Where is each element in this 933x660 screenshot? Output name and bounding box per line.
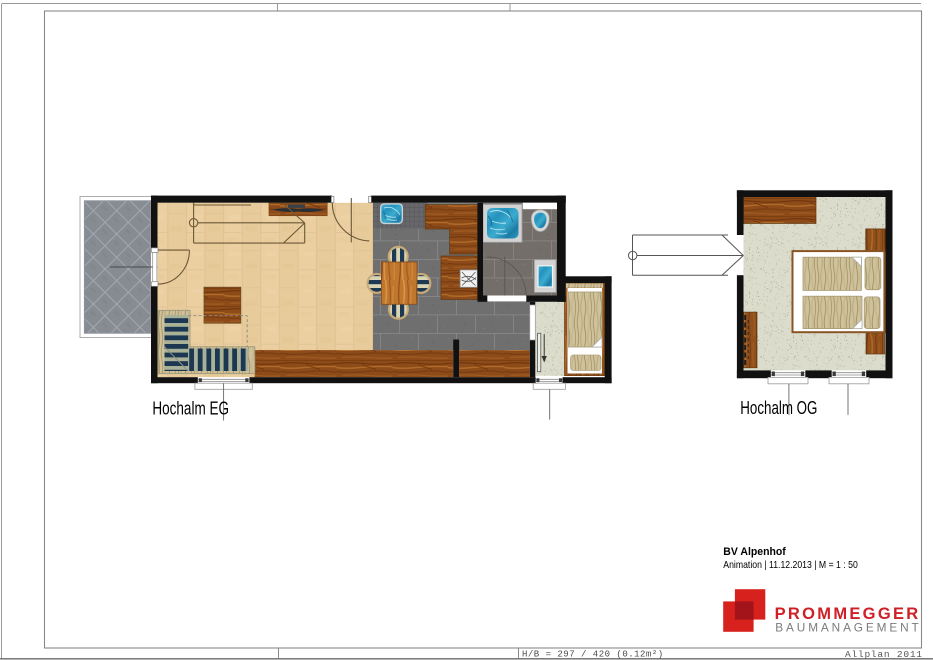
svg-text:Hochalm EG: Hochalm EG [152, 399, 229, 419]
svg-text:Allplan 2011: Allplan 2011 [845, 649, 922, 660]
svg-text:Animation | 11.12.2013 | M = 1: Animation | 11.12.2013 | M = 1 : 50 [723, 560, 858, 571]
svg-text:BV Alpenhof: BV Alpenhof [723, 546, 786, 558]
svg-text:Hochalm OG: Hochalm OG [740, 398, 817, 418]
svg-text:H/B = 297 / 420 (0.12m²): H/B = 297 / 420 (0.12m²) [522, 650, 664, 660]
svg-text:BAUMANAGEMENT: BAUMANAGEMENT [775, 621, 918, 635]
